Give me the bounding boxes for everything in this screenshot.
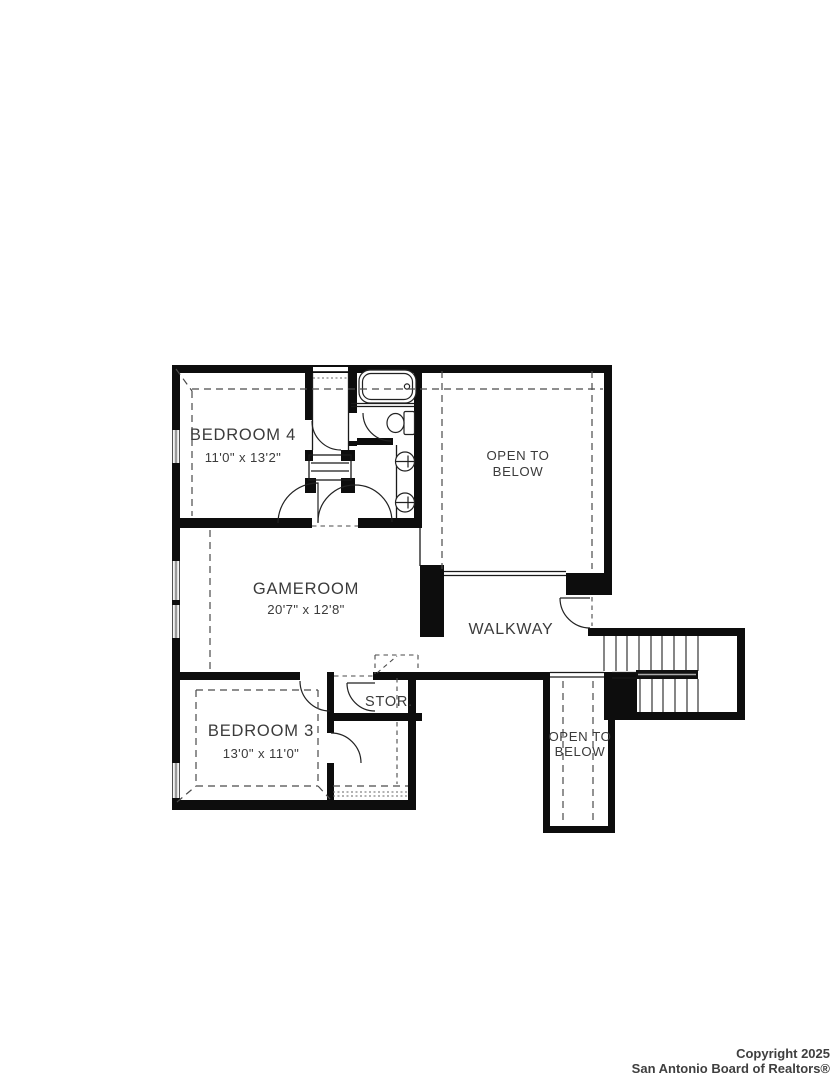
bathtub — [359, 370, 416, 403]
window-gameroom-2 — [173, 605, 180, 638]
open-below-upper-label-1: OPEN TO — [486, 448, 549, 463]
door-bedroom3 — [300, 681, 330, 711]
toilet — [387, 412, 415, 435]
stair-upper-treads — [604, 636, 698, 671]
door-bedroom4 — [312, 421, 341, 450]
gameroom-label: GAMEROOM — [253, 580, 359, 598]
vanity-sink-2 — [396, 493, 415, 512]
window-bedroom3 — [173, 763, 180, 798]
window-gameroom-1 — [173, 561, 180, 600]
storage-label: STOR. — [365, 694, 413, 710]
open-below-upper-label-2: BELOW — [493, 464, 544, 479]
walkway-label: WALKWAY — [468, 621, 553, 638]
door-bathroom — [363, 413, 391, 441]
open-below-lower-label-1: OPEN TO — [548, 729, 611, 744]
copyright-line1: Copyright 2025 — [632, 1046, 830, 1061]
bedroom3-label: BEDROOM 3 — [208, 722, 314, 740]
gameroom-dims: 20'7" x 12'8" — [267, 602, 345, 617]
bedroom3-dims: 13'0" x 11'0" — [223, 746, 300, 761]
door-bedroom3-closet — [331, 733, 361, 763]
bedroom4-label: BEDROOM 4 — [190, 426, 296, 444]
copyright-line2: San Antonio Board of Realtors® — [632, 1061, 830, 1076]
floorplan-image: BEDROOM 4 11'0" x 13'2" OPEN TO BELOW GA… — [0, 0, 835, 1080]
bedroom4-dims: 11'0" x 13'2" — [205, 450, 282, 465]
stair-lower-treads — [640, 679, 698, 712]
door-walkway-stairs — [560, 598, 590, 628]
vanity-sink-1 — [396, 452, 415, 471]
open-below-lower-label-2: BELOW — [555, 744, 606, 759]
copyright-notice: Copyright 2025 San Antonio Board of Real… — [632, 1046, 830, 1076]
window-bedroom4 — [173, 430, 180, 463]
